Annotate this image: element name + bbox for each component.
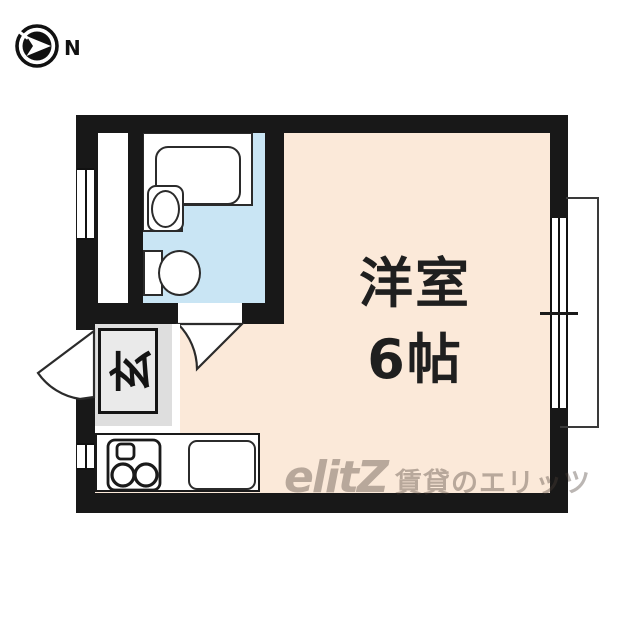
window-left-upper [77,168,94,240]
wall-bath-right [265,133,284,324]
entrance-door-arc [30,324,98,406]
watermark: elitZ 賃貸のエリッツ [284,452,591,503]
bathroom-door-arc [170,318,252,378]
watermark-text: 賃貸のエリッツ [395,461,591,500]
main-room-label: 洋室 6帖 [330,246,500,398]
watermark-logo: elitZ [284,452,387,503]
pipe-space [98,133,128,303]
compass-icon [13,23,61,71]
wall-top [76,115,568,133]
window-left-lower [77,443,94,470]
floorplan-canvas: N 玄 [0,0,640,640]
genkan-label: 玄 [96,349,160,393]
balcony-outline [550,196,602,430]
compass-north-label: N [64,36,81,60]
kitchen-sink [188,440,256,490]
washbasin-bowl-icon [151,190,180,228]
toilet-bowl [158,250,201,296]
genkan-label-box: 玄 [98,328,158,414]
stove-icon [106,438,162,492]
